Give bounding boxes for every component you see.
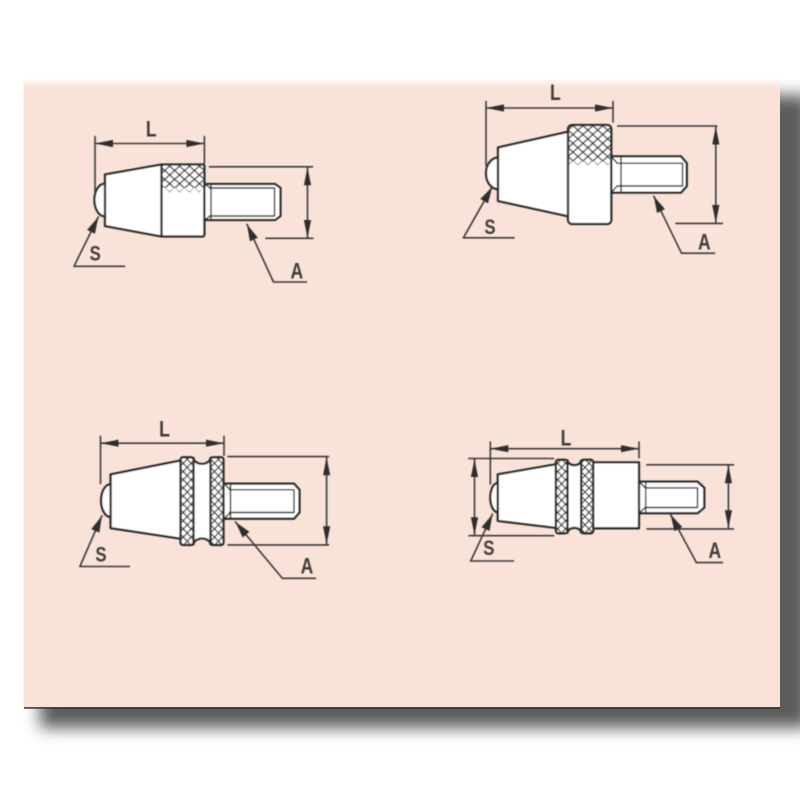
- svg-text:A: A: [698, 231, 711, 256]
- svg-text:L: L: [159, 418, 170, 443]
- svg-text:L: L: [550, 81, 561, 106]
- svg-text:L: L: [146, 117, 157, 142]
- svg-text:S: S: [483, 537, 494, 560]
- svg-text:S: S: [484, 216, 495, 239]
- svg-text:A: A: [708, 539, 721, 564]
- svg-text:L: L: [561, 426, 572, 451]
- svg-text:S: S: [90, 243, 101, 266]
- svg-text:A: A: [290, 259, 303, 284]
- svg-text:S: S: [95, 543, 106, 566]
- svg-text:A: A: [301, 555, 314, 580]
